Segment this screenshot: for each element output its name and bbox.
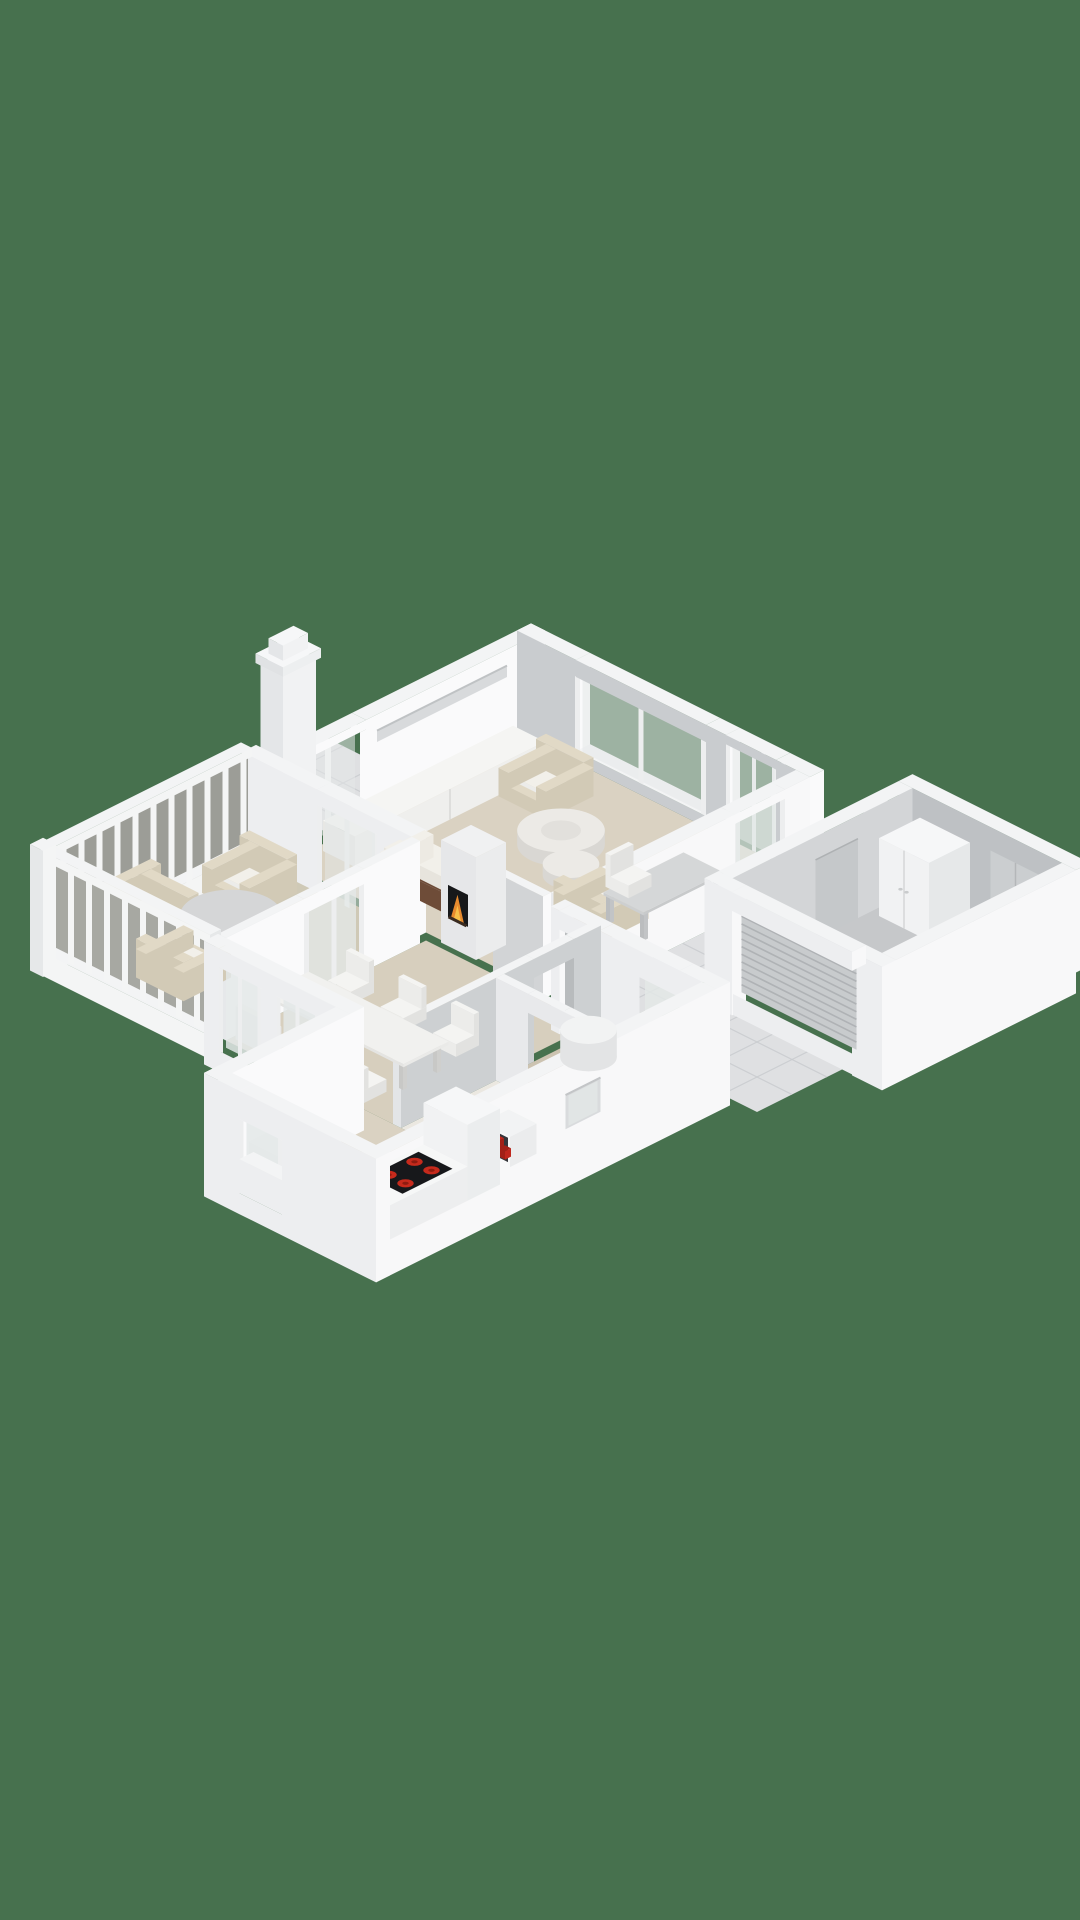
fireplace [441,825,506,960]
floorplan-3d-view [0,0,1080,1920]
floorplan-page [0,0,1080,1920]
hall-round-table [560,1016,617,1072]
